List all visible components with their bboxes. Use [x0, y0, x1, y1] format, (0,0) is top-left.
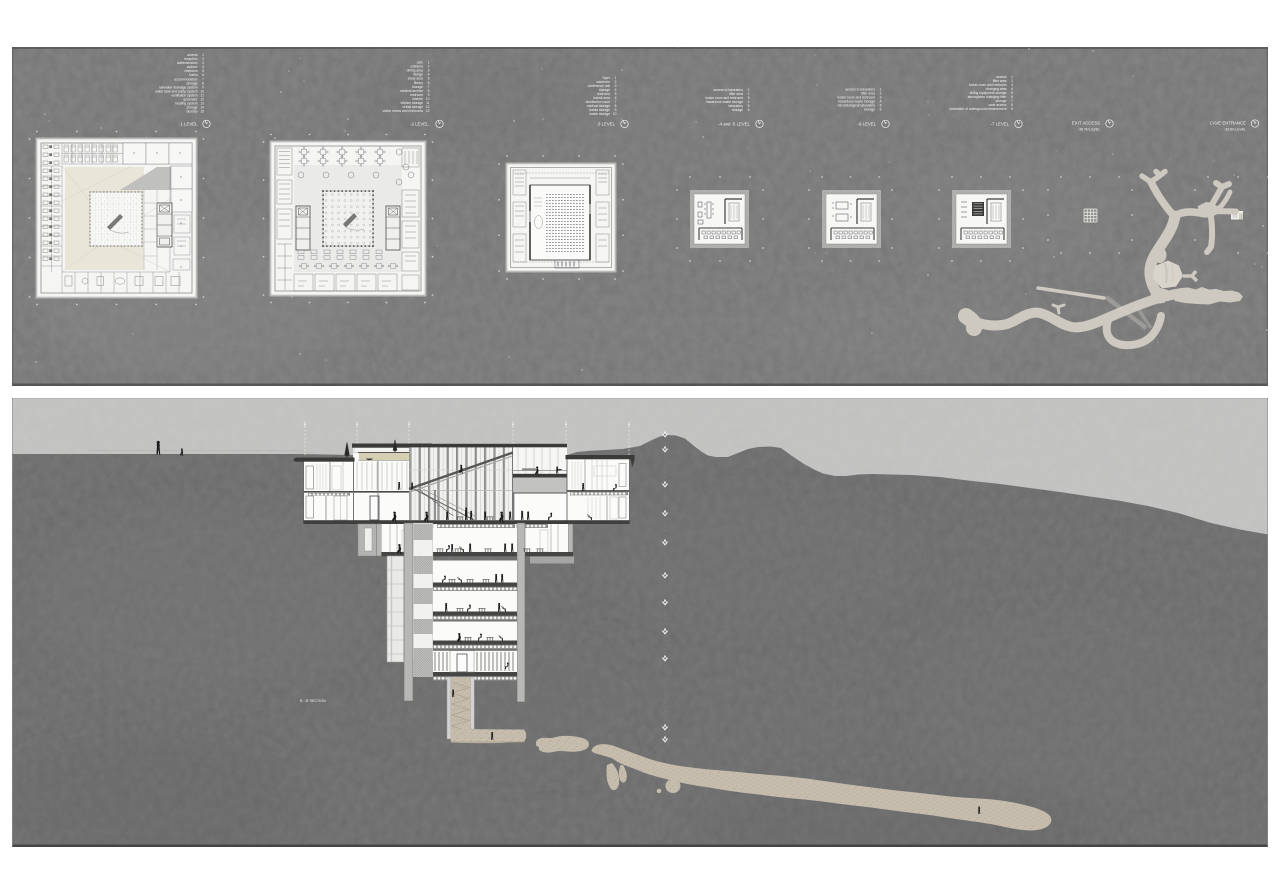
svg-text:-1 LEVEL: -1 LEVEL — [179, 122, 198, 127]
svg-text:waste storage: waste storage — [589, 112, 610, 116]
svg-text:simulation of underground envi: simulation of underground environment — [949, 107, 1006, 111]
svg-text:laundry: laundry — [187, 110, 198, 114]
svg-text:15: 15 — [200, 110, 204, 114]
svg-text:9: 9 — [1011, 107, 1013, 111]
svg-text:6: 6 — [880, 108, 882, 112]
svg-text:13: 13 — [426, 109, 430, 113]
svg-text:storage: storage — [864, 108, 875, 112]
svg-text:victim rooms and restrooms: victim rooms and restrooms — [383, 109, 424, 113]
svg-text:EXIT ACCESS: EXIT ACCESS — [1072, 121, 1100, 126]
svg-text:-4 and -5 LEVEL: -4 and -5 LEVEL — [718, 122, 750, 127]
svg-text:6: 6 — [748, 108, 750, 112]
svg-text:B - B’ SECTION: B - B’ SECTION — [300, 699, 326, 703]
svg-text:-33.5m LEVEL: -33.5m LEVEL — [1224, 128, 1246, 132]
svg-text:10: 10 — [613, 112, 617, 116]
svg-text:-6 LEVEL: -6 LEVEL — [858, 122, 877, 127]
svg-text:-3 LEVEL: -3 LEVEL — [597, 122, 616, 127]
svg-text:-7 LEVEL: -7 LEVEL — [991, 122, 1010, 127]
svg-text:-2 LEVEL: -2 LEVEL — [410, 122, 429, 127]
svg-text:-28 TH LEVEL: -28 TH LEVEL — [1078, 128, 1100, 132]
svg-text:CAVE ENTRANCE: CAVE ENTRANCE — [1210, 121, 1246, 126]
svg-text:storage: storage — [732, 108, 743, 112]
